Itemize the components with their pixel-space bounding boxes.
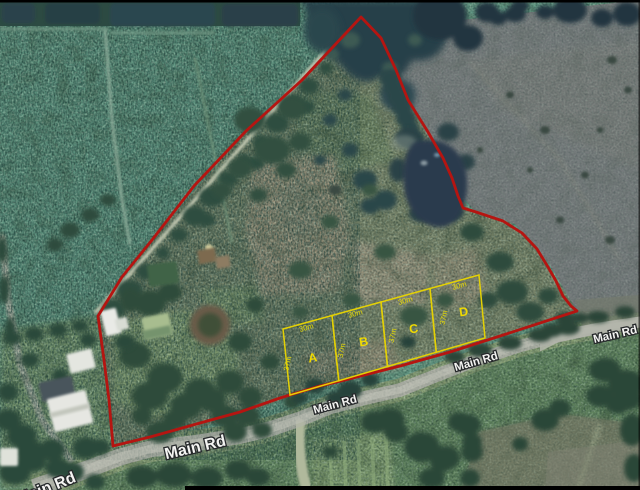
svg-text:C: C	[408, 321, 419, 336]
svg-text:B: B	[358, 334, 369, 349]
svg-text:A: A	[307, 350, 318, 365]
svg-text:D: D	[458, 304, 469, 319]
